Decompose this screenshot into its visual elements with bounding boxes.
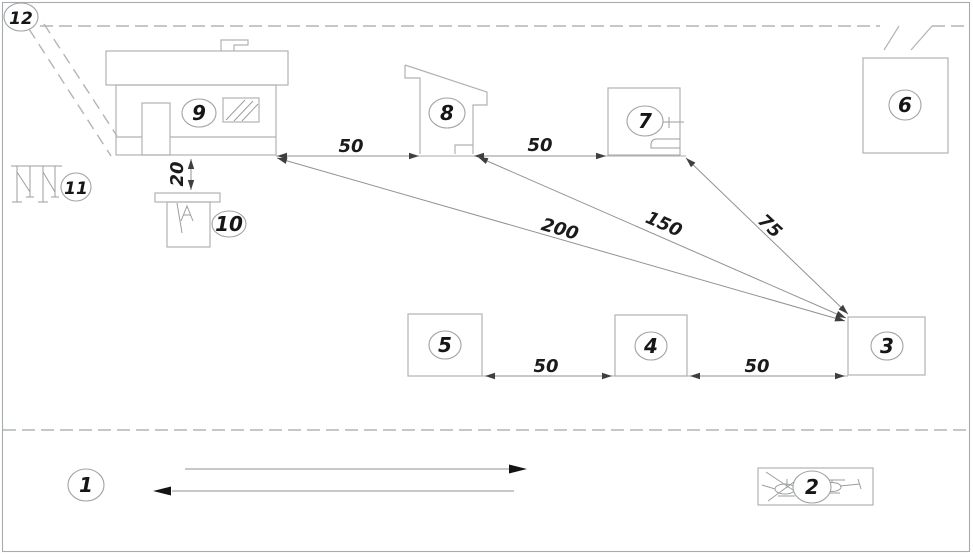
element-10-inner-line (177, 203, 182, 233)
element-11-braces (17, 172, 55, 192)
window-frame (223, 98, 259, 122)
dimension-50-bottom-left-value: 50 (533, 356, 558, 377)
dimension-20: 20 (167, 159, 191, 190)
dimension-50-top-right-value: 50 (527, 135, 552, 156)
building-9-vent (221, 40, 248, 51)
arrow-right-head (509, 465, 527, 474)
dimension-75-value: 75 (753, 210, 786, 242)
upper-dimension-chain: 50 50 (276, 135, 686, 157)
element-7-ramp (651, 139, 680, 148)
element-2: 2 (758, 468, 873, 505)
callout-5-label: 5 (438, 333, 452, 357)
dimension-200-value: 200 (539, 214, 581, 245)
direction-arrow-left (153, 487, 514, 496)
dimension-20-value: 20 (167, 161, 188, 186)
building-9-door (142, 103, 170, 155)
element-10-canopy (155, 193, 220, 202)
bottom-row: 5 4 3 50 50 (408, 314, 925, 377)
radial-dimensions: 200 150 75 (277, 157, 848, 321)
direction-arrow-right (185, 465, 527, 474)
callout-12: 12 (4, 3, 38, 31)
callout-7-label: 7 (638, 109, 652, 133)
site-plan-drawing: 12 9 20 10 11 (0, 0, 973, 558)
gate-right-leaf (911, 26, 932, 50)
dimension-150-value: 150 (642, 207, 685, 241)
callout-2-label: 2 (805, 475, 819, 499)
drawing-canvas: 12 9 20 10 11 (0, 0, 973, 558)
gate-left-leaf (884, 26, 899, 50)
arrow-left-head (153, 487, 171, 496)
element-10: 10 (155, 193, 246, 247)
callout-8-label: 8 (440, 101, 454, 125)
element-11: 11 (11, 166, 91, 202)
helicopter-tail-skids (762, 485, 795, 496)
callout-12-label: 12 (9, 9, 33, 29)
building-9-window (223, 98, 259, 122)
element-7: 7 (608, 88, 684, 155)
element-6: 6 (863, 58, 948, 153)
dimension-150-line (478, 157, 846, 318)
element-11-feet (12, 197, 59, 202)
access-road-edge-left (29, 29, 111, 156)
callout-11-label: 11 (64, 179, 88, 199)
building-8: 8 (405, 65, 487, 154)
callout-9-label: 9 (192, 101, 206, 125)
dimension-50-top-left-value: 50 (338, 136, 363, 157)
dimension-50-bottom-right-value: 50 (744, 356, 769, 377)
callout-4-label: 4 (643, 334, 658, 358)
element-11-legs (17, 166, 55, 202)
callout-6-label: 6 (898, 93, 912, 117)
building-9-roof (106, 51, 288, 85)
callout-1-label: 1 (79, 473, 93, 497)
building-9: 9 (106, 40, 288, 155)
element-7-side-tick (662, 117, 684, 128)
element-10-a-symbol (181, 206, 193, 221)
callout-3-label: 3 (880, 334, 894, 358)
runway-strip: 1 2 (68, 465, 873, 506)
callout-10-label: 10 (215, 212, 243, 236)
window-hatch (226, 100, 258, 121)
